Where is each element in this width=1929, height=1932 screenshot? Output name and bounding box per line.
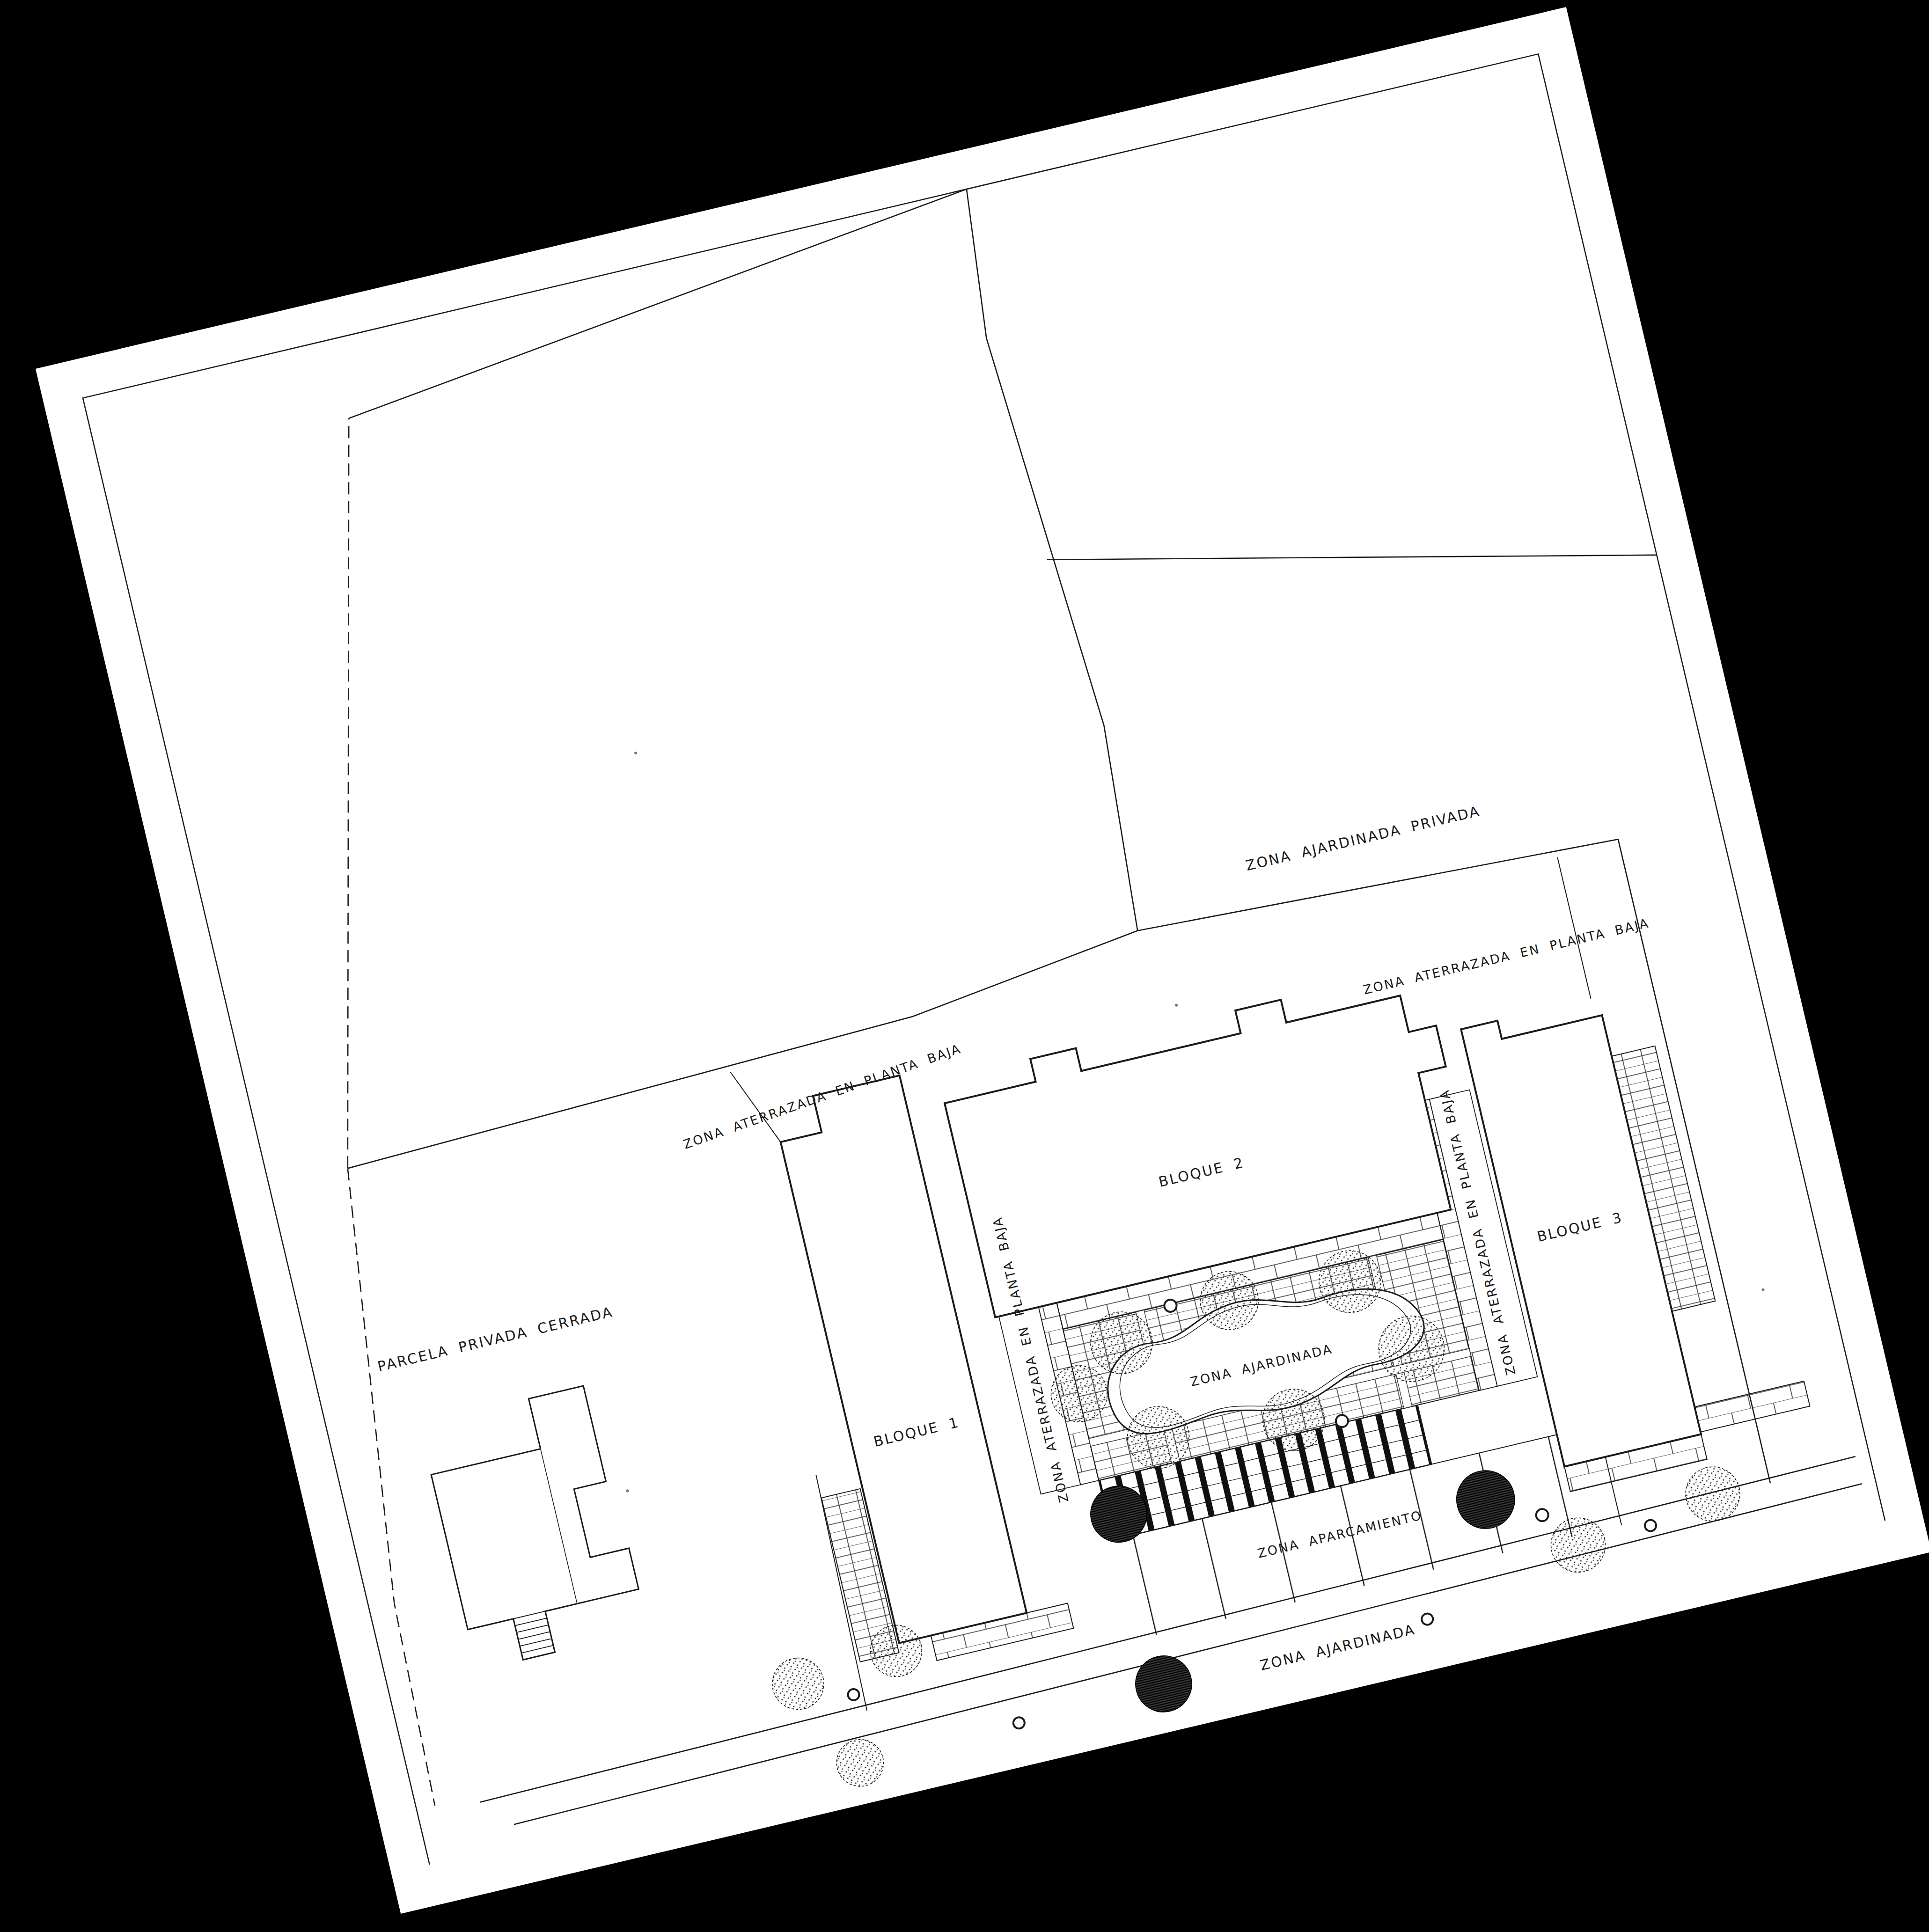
- site-plan-scan: ZONA AJARDINADA PRIVADA ZONA ATERRAZADA …: [0, 0, 1929, 1932]
- site-plan-svg: ZONA AJARDINADA PRIVADA ZONA ATERRAZADA …: [0, 0, 1929, 1932]
